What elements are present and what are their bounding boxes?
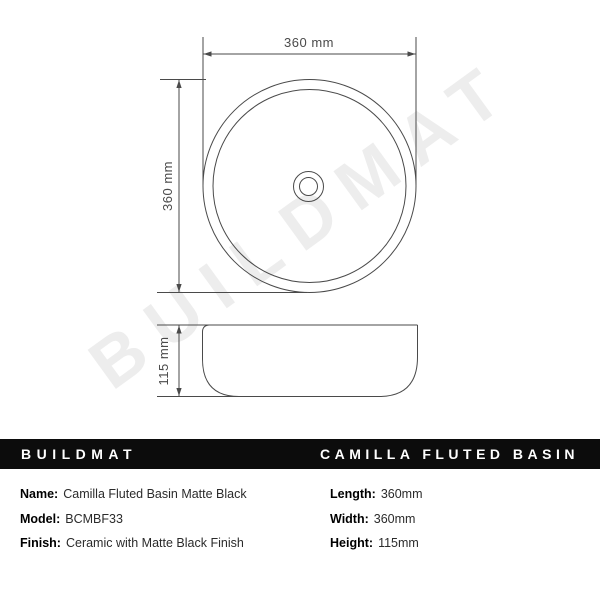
spec-row-width: Width:360mm — [330, 507, 580, 532]
spec-column-left: Name:Camilla Fluted Basin Matte Black Mo… — [20, 482, 330, 556]
spec-label-width: Width: — [330, 512, 369, 526]
spec-label-name: Name: — [20, 487, 58, 501]
product-spec-sheet: BUILDMAT 360 mm 360 mm — [0, 0, 600, 600]
spec-row-name: Name:Camilla Fluted Basin Matte Black — [20, 482, 330, 507]
brand-name: BUILDMAT — [21, 446, 137, 462]
spec-label-finish: Finish: — [20, 536, 61, 550]
dimension-plan-height: 360 mm — [157, 80, 307, 293]
spec-row-height: Height:115mm — [330, 531, 580, 556]
product-title: CAMILLA FLUTED BASIN — [320, 446, 579, 462]
side-view-right-edge — [379, 325, 418, 397]
dimension-label-top-width: 360 mm — [284, 35, 334, 50]
spec-row-length: Length:360mm — [330, 482, 580, 507]
spec-row-finish: Finish:Ceramic with Matte Black Finish — [20, 531, 330, 556]
spec-value-model: BCMBF33 — [65, 512, 123, 526]
side-view-left-edge — [203, 325, 240, 397]
spec-value-length: 360mm — [381, 487, 423, 501]
spec-row-model: Model:BCMBF33 — [20, 507, 330, 532]
basin-inner-rim — [213, 90, 406, 283]
basin-top-view — [203, 80, 416, 293]
basin-side-view — [157, 325, 418, 397]
spec-value-finish: Ceramic with Matte Black Finish — [66, 536, 244, 550]
title-banner: BUILDMAT CAMILLA FLUTED BASIN — [0, 439, 600, 469]
dimension-side-height: 115 mm — [156, 326, 179, 397]
drain-inner-circle — [300, 178, 318, 196]
dimension-label-plan-height: 360 mm — [160, 161, 175, 211]
drain-outer-circle — [294, 172, 324, 202]
spec-column-right: Length:360mm Width:360mm Height:115mm — [330, 482, 580, 556]
spec-value-name: Camilla Fluted Basin Matte Black — [63, 487, 246, 501]
spec-value-height: 115mm — [378, 536, 419, 550]
dimension-label-side-height: 115 mm — [156, 337, 171, 386]
spec-label-model: Model: — [20, 512, 60, 526]
spec-list: Name:Camilla Fluted Basin Matte Black Mo… — [0, 482, 600, 556]
spec-label-length: Length: — [330, 487, 376, 501]
spec-value-width: 360mm — [374, 512, 416, 526]
basin-outer-rim — [203, 80, 416, 293]
technical-drawing: 360 mm 360 mm 115 mm — [0, 0, 600, 440]
spec-label-height: Height: — [330, 536, 373, 550]
